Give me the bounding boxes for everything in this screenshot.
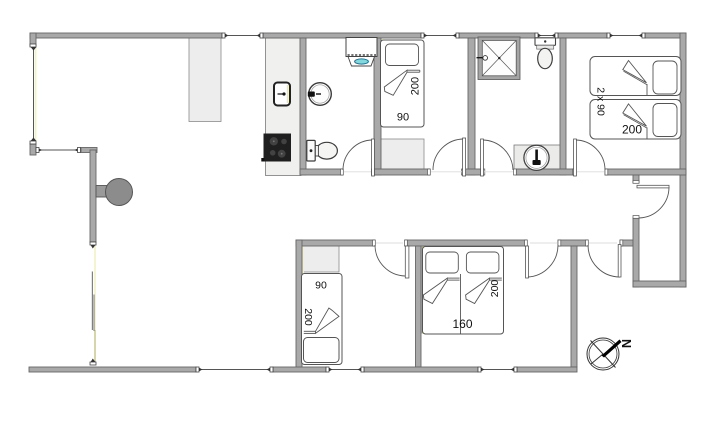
svg-text:N: N [619,339,633,348]
svg-text:200: 200 [622,123,642,137]
svg-text:200: 200 [302,308,314,326]
svg-text:90: 90 [397,111,409,123]
svg-text:160: 160 [452,317,472,331]
svg-text:200: 200 [409,77,421,95]
svg-text:2 x 90: 2 x 90 [595,87,607,116]
svg-text:90: 90 [315,279,327,291]
svg-text:200: 200 [489,280,501,298]
